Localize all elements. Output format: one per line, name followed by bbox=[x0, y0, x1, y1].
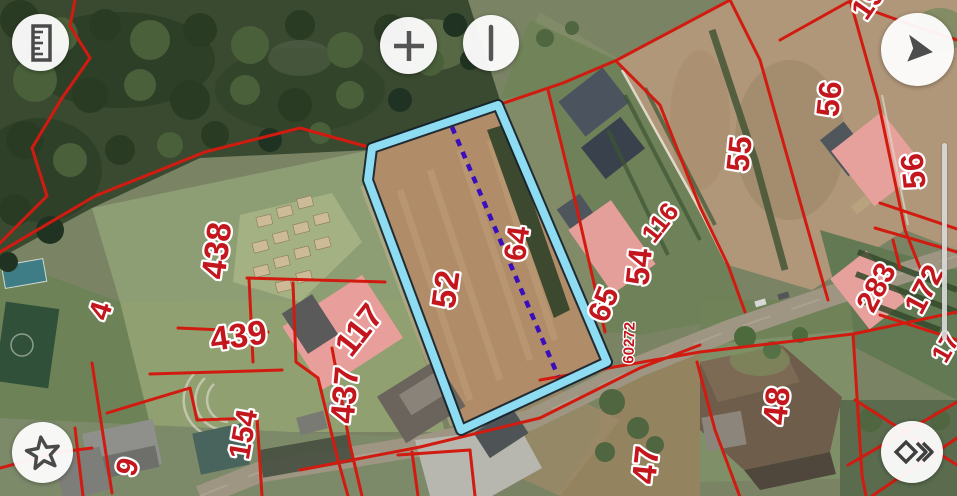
layers-next-button[interactable] bbox=[881, 421, 943, 483]
vertical-bar-icon bbox=[470, 22, 512, 64]
parcel-label-437: 437 bbox=[324, 365, 367, 425]
measure-button[interactable] bbox=[12, 14, 69, 71]
star-icon bbox=[20, 430, 66, 476]
map-canvas[interactable]: 4384439117437154952646554116602725556562… bbox=[0, 0, 957, 496]
map-scrollbar[interactable] bbox=[942, 143, 947, 340]
parcel-label-439: 439 bbox=[208, 313, 269, 359]
parcel-label-56: 56 bbox=[893, 152, 933, 191]
parcel-label-55: 55 bbox=[719, 134, 759, 173]
parcel-label-56: 56 bbox=[809, 79, 849, 118]
parcel-label-438: 438 bbox=[195, 220, 240, 281]
zoom-bar-button[interactable] bbox=[463, 15, 519, 71]
parcel-label-48: 48 bbox=[756, 385, 798, 427]
favorites-button[interactable] bbox=[12, 422, 73, 483]
parcel-label-60272: 60272 bbox=[620, 322, 638, 364]
parcel-label-54: 54 bbox=[618, 246, 659, 287]
parcel-label-64: 64 bbox=[497, 223, 537, 263]
ruler-icon bbox=[21, 21, 61, 65]
zoom-in-button[interactable] bbox=[380, 17, 437, 74]
plus-icon bbox=[388, 25, 430, 67]
navigate-button[interactable] bbox=[881, 13, 954, 86]
map-app: 4384439117437154952646554116602725556562… bbox=[0, 0, 957, 496]
diamond-chevron-icon bbox=[889, 429, 935, 475]
parcel-label-47: 47 bbox=[625, 444, 667, 486]
cursor-arrow-icon bbox=[895, 27, 941, 73]
parcel-label-52: 52 bbox=[425, 268, 468, 311]
